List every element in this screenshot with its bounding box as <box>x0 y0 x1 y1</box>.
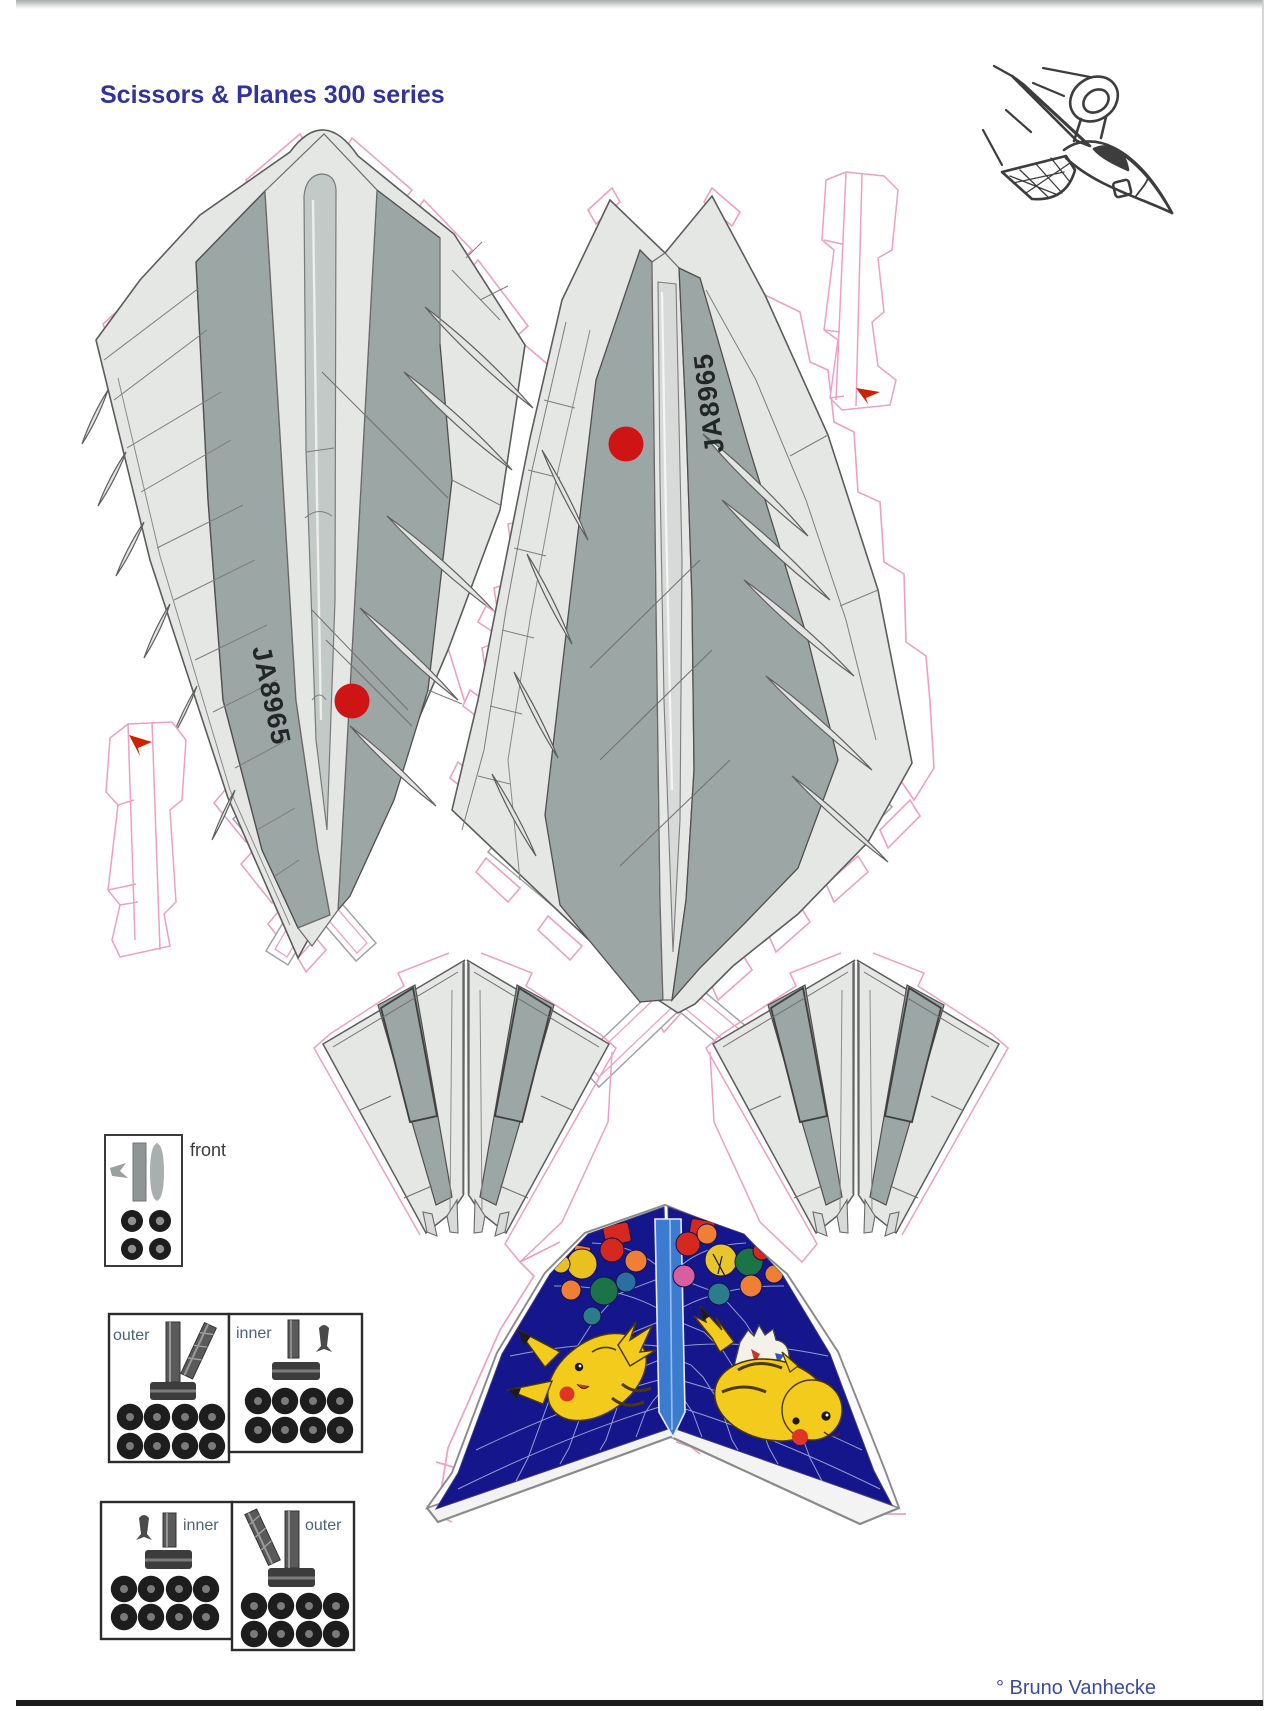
svg-text:inner: inner <box>183 1517 219 1534</box>
svg-text:outer: outer <box>113 1327 150 1344</box>
svg-text:° Bruno Vanhecke: ° Bruno Vanhecke <box>996 1677 1156 1699</box>
svg-text:Scissors & Planes 300 series: Scissors & Planes 300 series <box>100 81 445 109</box>
svg-text:inner: inner <box>236 1325 272 1342</box>
svg-text:outer: outer <box>305 1517 342 1534</box>
svg-text:front: front <box>190 1140 226 1160</box>
